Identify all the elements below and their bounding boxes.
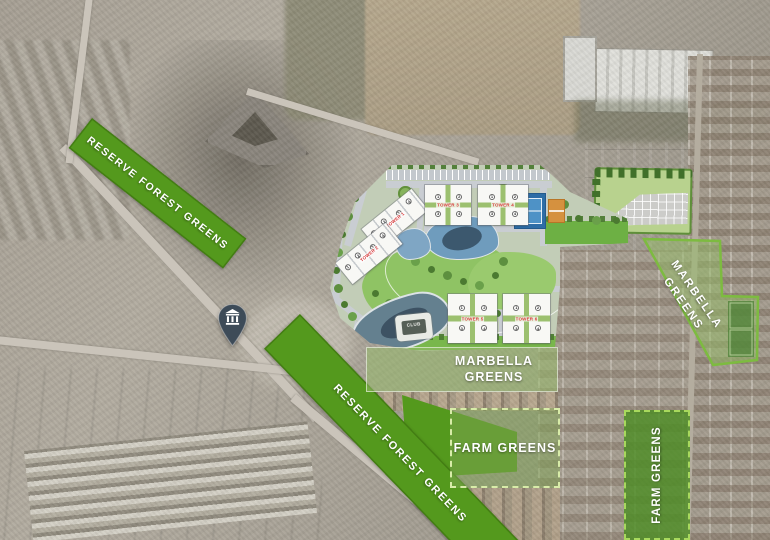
unit-number: 4 [512,211,518,217]
unit-number: 1 [435,194,441,200]
tower-block: 1 2 3 4 TOWER 5 [448,294,497,343]
unit-number: 3 [459,325,465,331]
unit-number: 2 [481,305,487,311]
unit-number: 2 [512,194,518,200]
zone-label: FARM GREENS [454,441,557,455]
unit-number: 3 [435,211,441,217]
zone-farm-greens-center: FARM GREENS [450,408,560,488]
unit-number: 1 [489,194,495,200]
parking-stalls-row [386,170,550,180]
zone-label: FARM GREENS [651,426,663,524]
right-lawn-band [545,221,628,244]
zone-label: MARBELLA GREENS [433,353,555,386]
station-map-pin [217,303,248,347]
unit-number: 1 [343,263,351,271]
basketball-court [548,199,565,223]
unit-number: 4 [481,325,487,331]
tower-label: TOWER 3 [436,203,460,208]
unit-number: 1 [513,305,519,311]
unit-number: 2 [456,194,462,200]
zone-marbella-greens-center: MARBELLA GREENS [366,347,558,392]
water-feature-island [440,222,484,255]
satellite-masterplan-map: CLUB 1 2 3 4 TOWER 1 1 2 3 4 TOWER 2 1 2… [0,0,770,540]
unit-number: 2 [535,305,541,311]
tower-label: TOWER 6 [515,316,539,321]
tower-label: TOWER 5 [461,316,485,321]
unit-number: 4 [379,231,387,239]
tower-block: 1 2 3 4 TOWER 6 [503,294,550,343]
unit-number: 4 [456,211,462,217]
tree-row [594,167,692,179]
tower-block: 1 2 3 4 TOWER 3 [425,185,471,225]
unit-number: 3 [513,325,519,331]
unit-number: 3 [489,211,495,217]
unit-number: 4 [405,197,413,205]
tower-label: TOWER 4 [491,203,515,208]
unit-number: 4 [535,325,541,331]
zone-farm-greens-right: FARM GREENS [624,410,690,540]
tower-block: 1 2 3 4 TOWER 4 [478,185,528,225]
unit-number: 1 [459,305,465,311]
clubhouse: CLUB [395,312,434,342]
